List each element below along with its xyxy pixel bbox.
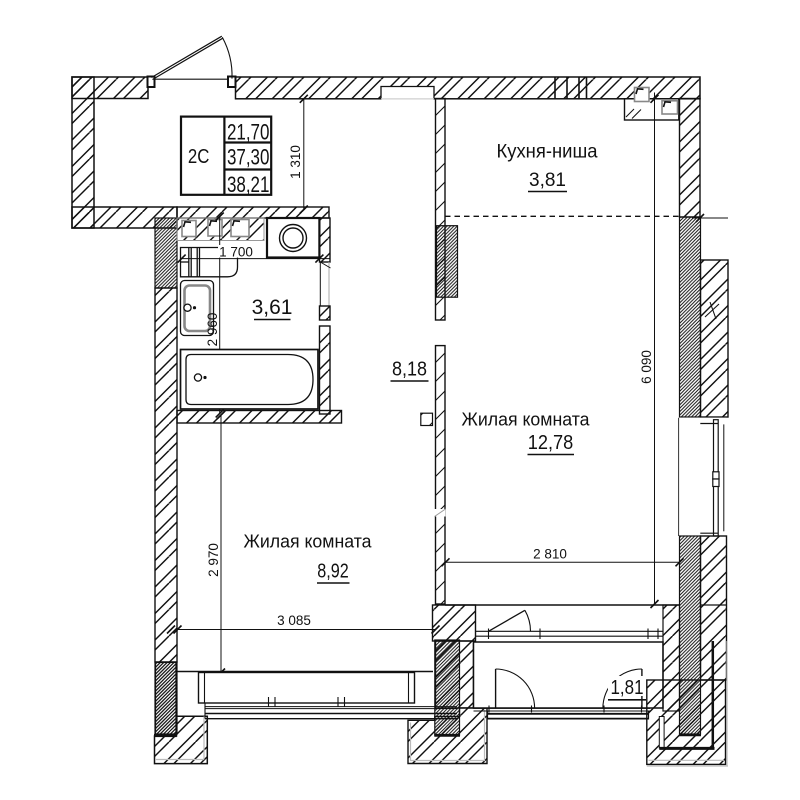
svg-text:38,21: 38,21 (227, 172, 270, 197)
svg-text:1 310: 1 310 (288, 145, 303, 179)
svg-text:1,81: 1,81 (611, 677, 644, 699)
svg-text:3,61: 3,61 (252, 296, 293, 319)
svg-text:Жилая комната: Жилая комната (244, 531, 373, 552)
svg-text:2 970: 2 970 (206, 543, 221, 577)
svg-text:3,81: 3,81 (529, 169, 566, 191)
svg-text:2 960: 2 960 (205, 313, 220, 347)
svg-text:3 085: 3 085 (277, 613, 311, 628)
svg-text:1 700: 1 700 (219, 244, 253, 259)
svg-text:8,92: 8,92 (317, 561, 349, 583)
svg-text:Жилая комната: Жилая комната (462, 409, 591, 430)
svg-text:37,30: 37,30 (227, 145, 270, 170)
svg-text:21,70: 21,70 (227, 120, 270, 145)
svg-text:Кухня-ниша: Кухня-ниша (497, 142, 598, 163)
svg-text:2 810: 2 810 (533, 547, 567, 562)
svg-text:8,18: 8,18 (392, 359, 427, 381)
svg-text:2С: 2С (188, 146, 210, 168)
svg-text:12,78: 12,78 (528, 432, 574, 454)
svg-text:6 090: 6 090 (639, 350, 654, 384)
